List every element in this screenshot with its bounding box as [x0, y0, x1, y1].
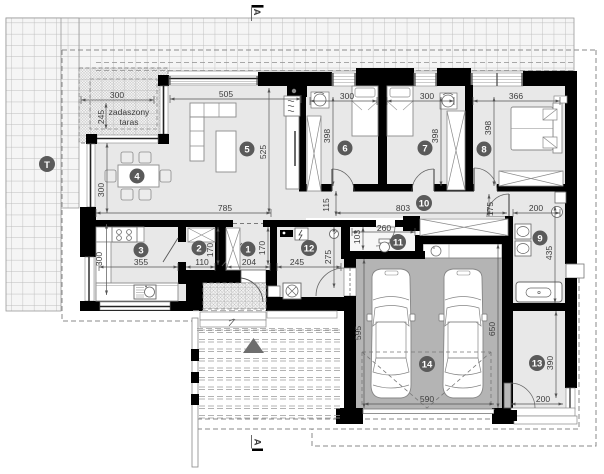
svg-text:103: 103: [352, 230, 362, 244]
svg-text:2: 2: [196, 244, 201, 255]
svg-text:435: 435: [544, 246, 554, 260]
svg-text:13: 13: [532, 359, 543, 370]
svg-text:170: 170: [257, 241, 267, 255]
svg-text:390: 390: [545, 356, 555, 370]
svg-text:204: 204: [242, 257, 256, 267]
svg-text:200: 200: [529, 203, 543, 213]
svg-text:300: 300: [94, 252, 104, 266]
svg-text:590: 590: [420, 394, 434, 404]
svg-text:785: 785: [218, 203, 232, 213]
svg-text:398: 398: [322, 129, 332, 143]
svg-text:5: 5: [244, 145, 250, 156]
svg-text:175: 175: [485, 202, 495, 216]
svg-text:14: 14: [422, 360, 433, 371]
svg-text:525: 525: [258, 145, 268, 159]
svg-text:1: 1: [245, 245, 251, 256]
svg-text:245: 245: [290, 257, 304, 267]
svg-text:200: 200: [536, 394, 550, 404]
svg-text:398: 398: [430, 129, 440, 143]
svg-text:9: 9: [537, 234, 542, 245]
svg-text:300: 300: [420, 91, 434, 101]
svg-text:366: 366: [509, 91, 523, 101]
svg-text:300: 300: [110, 90, 124, 100]
svg-text:3: 3: [138, 246, 143, 257]
svg-text:260: 260: [377, 223, 391, 233]
svg-text:12: 12: [304, 244, 315, 255]
svg-text:245: 245: [96, 110, 106, 124]
svg-text:300: 300: [340, 91, 354, 101]
svg-text:10: 10: [419, 199, 430, 210]
svg-text:505: 505: [219, 89, 233, 99]
svg-text:398: 398: [483, 121, 493, 135]
svg-text:6: 6: [342, 144, 347, 155]
svg-text:4: 4: [134, 172, 140, 183]
svg-text:275: 275: [323, 250, 333, 264]
svg-text:595: 595: [353, 326, 363, 340]
svg-text:A: A: [252, 439, 263, 446]
svg-text:355: 355: [134, 257, 148, 267]
svg-text:170: 170: [205, 243, 215, 257]
svg-text:taras: taras: [120, 117, 139, 127]
svg-text:115: 115: [321, 198, 331, 212]
svg-text:650: 650: [487, 322, 497, 336]
svg-text:8: 8: [481, 145, 486, 156]
svg-text:110: 110: [195, 257, 209, 267]
svg-text:7: 7: [422, 144, 427, 155]
svg-text:300: 300: [96, 183, 106, 197]
svg-text:803: 803: [396, 203, 410, 213]
svg-text:T: T: [44, 160, 50, 171]
svg-text:zadaszony: zadaszony: [109, 107, 150, 117]
svg-text:A: A: [251, 9, 262, 16]
svg-text:11: 11: [393, 238, 404, 249]
